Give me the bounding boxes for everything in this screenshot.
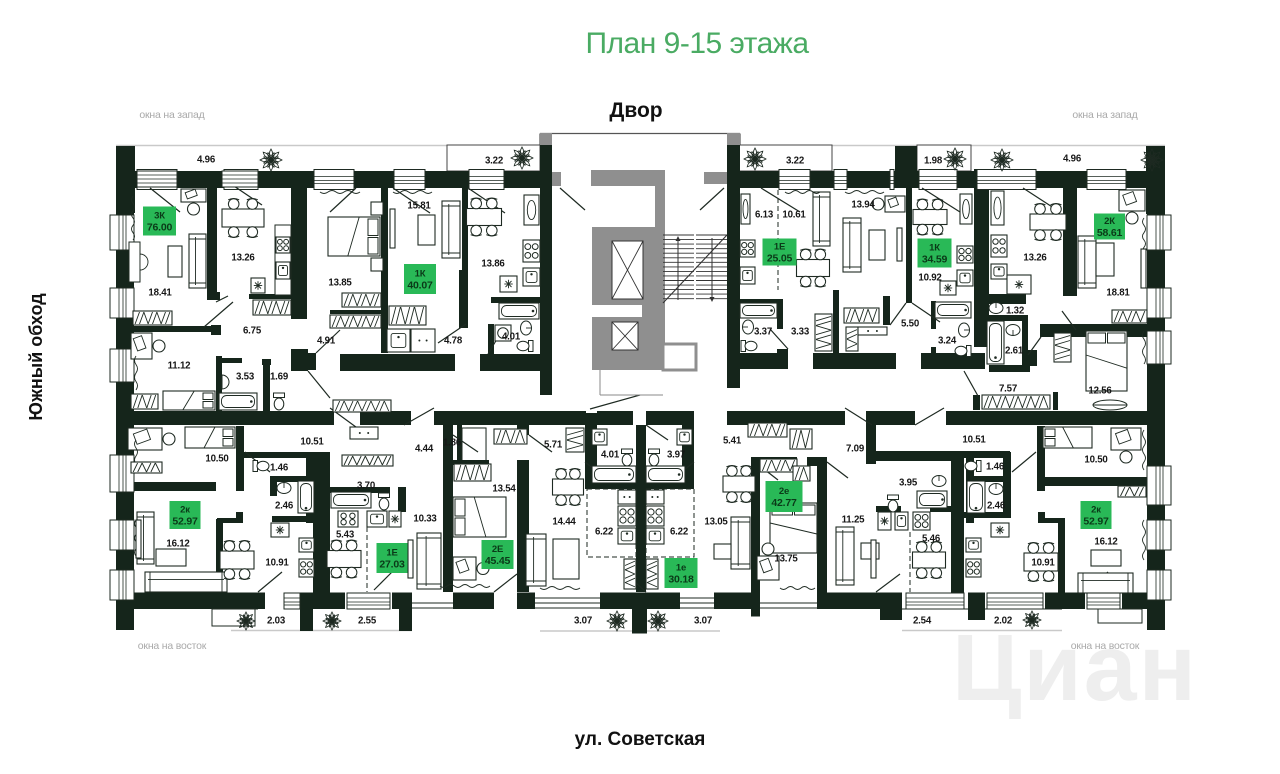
- svg-text:10.50: 10.50: [1084, 455, 1107, 466]
- svg-text:4.78: 4.78: [444, 336, 463, 347]
- svg-text:1.69: 1.69: [270, 372, 289, 383]
- svg-text:3.22: 3.22: [485, 156, 503, 167]
- svg-text:1Е: 1Е: [774, 242, 785, 253]
- svg-text:План 9-15 этажа: План 9-15 этажа: [585, 27, 809, 60]
- svg-text:3.53: 3.53: [236, 372, 255, 383]
- svg-text:1Е: 1Е: [386, 548, 397, 559]
- svg-text:ул. Советская: ул. Советская: [575, 729, 706, 750]
- svg-text:30.18: 30.18: [668, 574, 694, 586]
- svg-text:3.07: 3.07: [694, 616, 712, 627]
- svg-text:15.81: 15.81: [407, 201, 431, 212]
- svg-text:3.24: 3.24: [938, 336, 957, 347]
- svg-text:1К: 1К: [415, 269, 426, 280]
- svg-text:2.55: 2.55: [358, 616, 377, 627]
- svg-text:18.41: 18.41: [148, 288, 172, 299]
- svg-text:4.91: 4.91: [317, 336, 336, 347]
- svg-text:13.85: 13.85: [328, 278, 352, 289]
- svg-text:58.61: 58.61: [1097, 227, 1123, 239]
- svg-text:5.46: 5.46: [922, 534, 941, 545]
- svg-text:13.26: 13.26: [1023, 253, 1047, 264]
- svg-text:окна на восток: окна на восток: [138, 640, 207, 652]
- svg-text:3К: 3К: [154, 211, 165, 222]
- svg-text:10.61: 10.61: [782, 210, 806, 221]
- svg-text:45.45: 45.45: [485, 555, 511, 567]
- svg-text:2.61: 2.61: [1005, 346, 1024, 357]
- svg-text:7.57: 7.57: [999, 384, 1017, 395]
- svg-text:2Е: 2Е: [492, 544, 503, 555]
- svg-text:34.59: 34.59: [922, 254, 948, 266]
- svg-text:2.46: 2.46: [987, 501, 1006, 512]
- svg-text:16.12: 16.12: [1094, 537, 1117, 548]
- svg-text:16.12: 16.12: [166, 539, 189, 550]
- svg-text:52.97: 52.97: [1083, 516, 1109, 528]
- svg-text:10.92: 10.92: [918, 273, 941, 284]
- svg-text:2.03: 2.03: [267, 616, 286, 627]
- svg-text:2.54: 2.54: [913, 616, 932, 627]
- svg-text:3.22: 3.22: [786, 156, 804, 167]
- svg-text:4.01: 4.01: [601, 450, 620, 461]
- svg-text:2е: 2е: [779, 486, 789, 497]
- svg-text:11.25: 11.25: [842, 515, 866, 526]
- svg-text:25.05: 25.05: [767, 253, 793, 265]
- svg-text:13.05: 13.05: [704, 517, 728, 528]
- svg-text:14.44: 14.44: [552, 517, 576, 528]
- svg-text:3.97: 3.97: [667, 450, 685, 461]
- svg-text:5.43: 5.43: [336, 530, 355, 541]
- svg-text:42.77: 42.77: [771, 497, 797, 509]
- svg-text:10.50: 10.50: [205, 454, 228, 465]
- svg-text:2К: 2К: [1104, 216, 1115, 227]
- svg-text:окна на запад: окна на запад: [139, 109, 204, 121]
- svg-text:3.37: 3.37: [754, 327, 772, 338]
- svg-text:1е: 1е: [676, 563, 686, 574]
- svg-text:окна на запад: окна на запад: [1072, 109, 1137, 121]
- svg-text:4.96: 4.96: [1063, 154, 1082, 165]
- svg-text:18.81: 18.81: [1106, 288, 1130, 299]
- svg-text:7.09: 7.09: [846, 444, 865, 455]
- svg-text:13.94: 13.94: [851, 200, 875, 211]
- svg-text:3.70: 3.70: [357, 481, 375, 492]
- svg-text:2к: 2к: [1091, 505, 1101, 516]
- svg-text:3.33: 3.33: [791, 327, 810, 338]
- svg-text:12.56: 12.56: [1088, 386, 1112, 397]
- svg-text:Двор: Двор: [609, 99, 662, 122]
- svg-text:3.07: 3.07: [574, 616, 592, 627]
- svg-text:40.07: 40.07: [407, 280, 433, 292]
- svg-text:10.91: 10.91: [1031, 558, 1055, 569]
- svg-text:10.33: 10.33: [413, 514, 437, 525]
- svg-text:Южный обход: Южный обход: [26, 293, 46, 421]
- svg-text:11.12: 11.12: [168, 361, 191, 372]
- svg-text:13.54: 13.54: [492, 484, 516, 495]
- svg-text:6.13: 6.13: [755, 210, 774, 221]
- svg-text:5.71: 5.71: [544, 440, 563, 451]
- svg-text:1.98: 1.98: [924, 156, 943, 167]
- svg-text:2.02: 2.02: [994, 616, 1012, 627]
- svg-text:1.86: 1.86: [443, 438, 462, 449]
- svg-text:4.01: 4.01: [502, 332, 521, 343]
- svg-text:27.03: 27.03: [379, 559, 405, 571]
- svg-text:5.41: 5.41: [723, 436, 742, 447]
- svg-text:76.00: 76.00: [147, 222, 173, 234]
- svg-text:1К: 1К: [929, 243, 940, 254]
- svg-text:2.46: 2.46: [275, 501, 294, 512]
- svg-text:13.75: 13.75: [774, 554, 798, 565]
- svg-text:4.96: 4.96: [197, 155, 216, 166]
- svg-text:4.44: 4.44: [415, 444, 434, 455]
- svg-text:13.26: 13.26: [231, 253, 255, 264]
- svg-text:1.46: 1.46: [986, 462, 1005, 473]
- svg-text:10.51: 10.51: [962, 435, 986, 446]
- svg-text:2к: 2к: [180, 505, 190, 516]
- svg-text:1.46: 1.46: [270, 463, 289, 474]
- svg-text:10.91: 10.91: [265, 558, 289, 569]
- svg-text:1.32: 1.32: [1006, 306, 1024, 317]
- svg-text:5.50: 5.50: [901, 319, 919, 330]
- svg-text:6.75: 6.75: [243, 326, 262, 337]
- svg-text:10.51: 10.51: [300, 437, 324, 448]
- svg-text:3.95: 3.95: [899, 478, 918, 489]
- svg-text:52.97: 52.97: [172, 516, 198, 528]
- svg-text:13.86: 13.86: [481, 259, 505, 270]
- svg-text:6.22: 6.22: [670, 527, 688, 538]
- svg-text:6.22: 6.22: [595, 527, 613, 538]
